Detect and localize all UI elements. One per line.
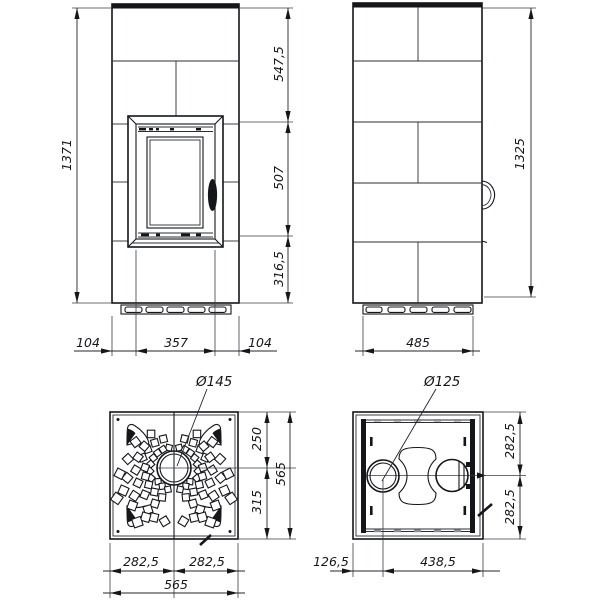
- ornament-square: [177, 486, 184, 493]
- ornament-square: [141, 472, 150, 481]
- ornament-square: [190, 488, 198, 496]
- stove-door: [128, 116, 223, 247]
- ornament-square: [150, 438, 159, 447]
- dim-front-bottom-left: 104: [76, 335, 100, 350]
- ornament-square: [208, 490, 219, 501]
- dimension-arrow: [285, 111, 290, 122]
- dim-plan-width-total: 565: [164, 577, 188, 592]
- dimension-arrow: [363, 348, 374, 353]
- dimension-arrow: [264, 468, 269, 479]
- dimension-arrow: [264, 412, 269, 423]
- side-door-handle: [482, 181, 495, 243]
- dim-plan-flue-diameter: Ø145: [195, 374, 232, 390]
- dimension-arrow: [287, 412, 292, 423]
- dimension-arrow: [264, 457, 269, 468]
- ornament-square: [178, 516, 189, 527]
- front-body: [112, 4, 239, 303]
- ornament-square: [205, 478, 215, 488]
- dimension-arrow: [528, 286, 533, 297]
- dimension-arrow: [517, 526, 522, 537]
- dim-section-offset-right: 438,5: [420, 554, 456, 569]
- ornament-square: [150, 488, 158, 496]
- dim-section-offset-upper: 282,5: [502, 423, 517, 459]
- dim-front-segment-top: 547,5: [271, 46, 286, 82]
- side-body: [353, 3, 482, 303]
- door-glass: [147, 137, 203, 228]
- dim-section-offset-left: 126,5: [313, 554, 349, 569]
- dimension-arrow: [174, 568, 185, 573]
- side-base: [363, 305, 473, 314]
- dimension-arrow: [136, 348, 147, 353]
- dimension-arrow: [110, 590, 121, 595]
- dim-plan-half-left: 282,5: [123, 554, 159, 569]
- front-view: 1371 547,5 507 316,5 104 357 104: [59, 4, 293, 356]
- front-base: [121, 305, 231, 314]
- dimension-arrow: [517, 465, 522, 476]
- plan-view: Ø145 250 315 565 282,5 282,5 565: [103, 374, 296, 598]
- ornament-square: [214, 453, 225, 464]
- dimension-arrow: [74, 292, 79, 303]
- ornament-square: [129, 490, 140, 501]
- dim-plan-depth-total: 565: [273, 462, 288, 486]
- dimension-arrow: [163, 568, 174, 573]
- dimension-arrow: [227, 568, 238, 573]
- ornament-wing-left: [111, 430, 173, 528]
- dimension-arrow: [101, 348, 112, 353]
- side-tile-joints: [353, 7, 482, 303]
- dimension-arrow: [285, 225, 290, 236]
- ornament-square: [207, 465, 217, 475]
- front-top-plate: [112, 4, 239, 9]
- ornament-square: [147, 430, 155, 438]
- dimension-arrow: [342, 568, 353, 573]
- dimension-arrow: [285, 236, 290, 247]
- technical-drawing: 1371 547,5 507 316,5 104 357 104: [0, 0, 600, 600]
- dim-plan-half-right: 282,5: [189, 554, 225, 569]
- dimension-arrow: [264, 528, 269, 539]
- door-bottom-vent: [138, 233, 213, 237]
- dim-front-segment-bottom: 316,5: [271, 251, 286, 287]
- plan-position-tick: [200, 535, 211, 545]
- dimension-arrow: [110, 568, 121, 573]
- side-view: 1325 485: [353, 3, 536, 356]
- dimension-arrow: [285, 8, 290, 19]
- ornament-square: [182, 494, 190, 502]
- dim-side-height: 1325: [512, 138, 527, 170]
- dim-section-offset-lower: 282,5: [502, 489, 517, 525]
- dim-side-base-width: 485: [406, 335, 430, 350]
- ornament-square: [140, 490, 150, 500]
- dimension-arrow: [285, 122, 290, 133]
- ornament-square: [159, 435, 167, 443]
- dimension-arrow: [517, 476, 522, 487]
- dim-front-total-height: 1371: [59, 139, 74, 171]
- dimension-arrow: [285, 292, 290, 303]
- ornament-square: [198, 472, 207, 481]
- dimension-arrow: [239, 348, 250, 353]
- dim-plan-offset-top: 250: [249, 427, 264, 451]
- ornament-square: [141, 463, 150, 472]
- dimension-arrow: [383, 568, 394, 573]
- dimension-arrow: [528, 8, 533, 19]
- ornament-square: [122, 453, 133, 464]
- dimension-arrow: [227, 590, 238, 595]
- ornament-square: [158, 494, 166, 502]
- section-view: Ø125 282,5 282,5 126,5 438,5: [313, 374, 526, 577]
- side-top-plate: [353, 3, 482, 8]
- section-flue-leader: [382, 389, 436, 481]
- section-inner-frame: [361, 419, 475, 533]
- dimension-arrow: [517, 413, 522, 424]
- dim-plan-offset-bottom: 315: [249, 490, 264, 514]
- dimension-arrow: [472, 568, 483, 573]
- ornament-square: [198, 490, 208, 500]
- dim-front-bottom-right: 104: [248, 335, 272, 350]
- ornament-square: [164, 486, 171, 493]
- dim-front-bottom-center: 357: [164, 335, 188, 350]
- ornament-square: [198, 463, 207, 472]
- dimension-arrow: [462, 348, 473, 353]
- front-tile-joints: [112, 61, 239, 241]
- dim-front-segment-middle: 507: [271, 166, 286, 190]
- ornament-square: [133, 478, 143, 488]
- ornament-square: [193, 430, 201, 438]
- dimension-arrow: [204, 348, 215, 353]
- technical-drawing-canvas: 1371 547,5 507 316,5 104 357 104: [0, 0, 600, 600]
- ornament-square: [159, 516, 170, 527]
- door-top-vent: [138, 127, 213, 132]
- door-handle: [208, 179, 217, 211]
- dim-section-flue-diameter: Ø125: [423, 374, 460, 390]
- ornament-wing-right: [175, 430, 237, 528]
- section-convection-channel: [399, 448, 436, 505]
- dimension-arrow: [287, 528, 292, 539]
- dimension-arrow: [74, 8, 79, 19]
- ornament-square: [189, 438, 198, 447]
- ornament-square: [131, 465, 141, 475]
